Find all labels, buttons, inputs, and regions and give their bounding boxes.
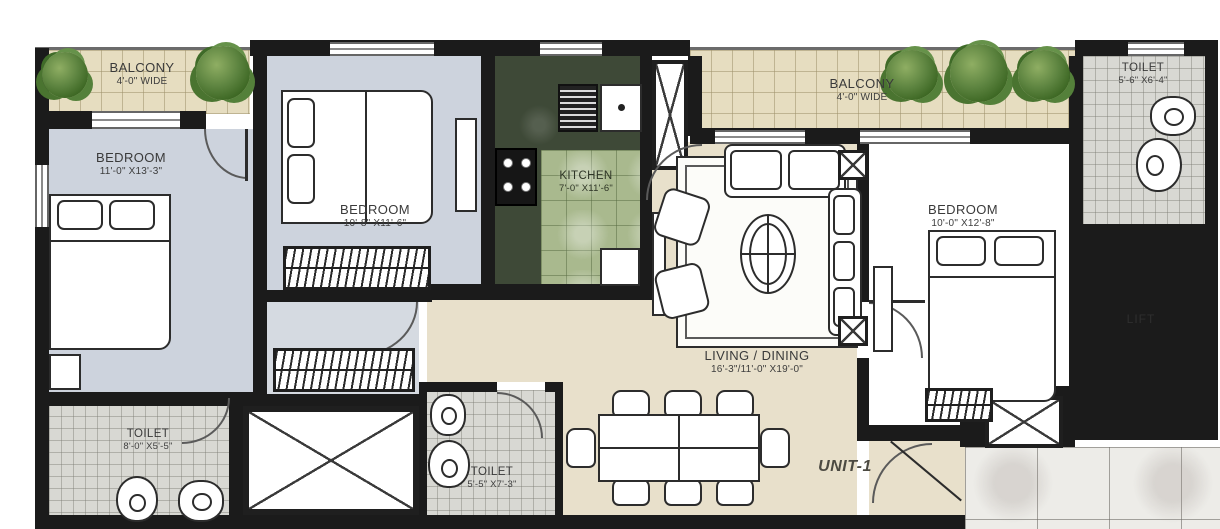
sink-icon [600, 84, 642, 132]
wardrobe-icon [273, 348, 415, 392]
wall [1205, 40, 1218, 230]
refrigerator-icon [558, 84, 598, 132]
unit-label: UNIT-1 [818, 458, 872, 476]
wardrobe-icon [925, 388, 993, 422]
room-name: TOILET [1118, 62, 1167, 74]
bedroom-left-label: BEDROOM 11'-0" X13'-3" [96, 150, 166, 177]
chair-icon [566, 428, 596, 468]
wall [430, 284, 652, 300]
wall [229, 406, 243, 515]
pillow-icon [57, 200, 103, 230]
bedroom-right-label: BEDROOM 10'-0" X12'-8" [928, 202, 998, 229]
end-table-icon [838, 150, 868, 180]
toilet-bottom-left-label: TOILET 8'-0" X5'-5" [123, 428, 172, 452]
wall [857, 358, 869, 441]
chair-icon [664, 478, 702, 506]
room-dim: 10'-0" X12'-8" [928, 218, 998, 229]
kitchen-counter-icon [600, 248, 640, 286]
wall [419, 382, 497, 392]
plant-icon [196, 46, 250, 100]
chair-icon [612, 478, 650, 506]
balcony-right-label: BALCONY 4'-0" WIDE [830, 76, 895, 103]
room-dim: 4'-0" WIDE [830, 92, 895, 103]
room-name: BEDROOM [340, 202, 410, 217]
sink-drain-icon [618, 104, 625, 111]
sofa-cushion [833, 195, 855, 235]
balcony-left-label: BALCONY 4'-0" WIDE [110, 60, 175, 87]
washbasin-icon [1150, 96, 1196, 136]
room-name: KITCHEN [559, 170, 613, 182]
window [715, 130, 805, 144]
corridor-floor [427, 298, 652, 382]
door-leaf [245, 129, 248, 181]
window [860, 130, 970, 144]
wall [35, 515, 965, 529]
living-dining-label: LIVING / DINING 16'-3"/11'-0" X19'-0" [705, 348, 810, 375]
window [1128, 42, 1184, 56]
sofa-icon [828, 188, 862, 336]
stove-icon [495, 148, 537, 206]
pillow-icon [994, 236, 1044, 266]
room-name: BALCONY [830, 76, 895, 91]
room-dim: 16'-3"/11'-0" X19'-0" [705, 364, 810, 375]
window [330, 42, 434, 56]
burner-icon [503, 182, 513, 192]
toilet-middle-label: TOILET 5'-5" X7'-3" [467, 466, 516, 490]
room-dim: 5'-5" X7'-3" [467, 479, 516, 490]
room-dim: 5'-6" X6'-4" [1118, 75, 1167, 86]
room-name: BALCONY [110, 60, 175, 75]
plant-icon [950, 44, 1008, 102]
wc-icon [1136, 138, 1182, 192]
wardrobe-icon [283, 246, 431, 290]
window [540, 42, 602, 56]
plant-icon [1018, 50, 1070, 100]
bedroom-middle-label: BEDROOM 10'-8" X11'-6" [340, 202, 410, 229]
lift-label: LIFT [1127, 312, 1156, 326]
pillow-icon [109, 200, 155, 230]
room-dim: 8'-0" X5'-5" [123, 441, 172, 452]
room-dim: 7'-0" X11'-6" [559, 183, 613, 194]
wall [555, 390, 563, 515]
dresser-icon [455, 118, 477, 212]
wall [419, 390, 427, 515]
wall [35, 111, 92, 129]
room-dim: 10'-8" X11'-6" [340, 218, 410, 229]
wall [481, 56, 495, 298]
plant-icon [42, 52, 88, 98]
burner-icon [521, 182, 531, 192]
washbasin-icon [430, 394, 466, 436]
floor-plan: BALCONY 4'-0" WIDE BEDROOM 11'-0" X13'-3… [0, 0, 1220, 529]
blanket-line [928, 276, 1056, 278]
side-table-icon [49, 354, 81, 390]
wall [180, 111, 206, 129]
wall [688, 56, 702, 136]
sofa-cushion [788, 150, 840, 190]
window [92, 111, 180, 129]
shaft-x-icon [243, 406, 419, 515]
burner-icon [503, 158, 513, 168]
chair-icon [760, 428, 790, 468]
room-dim: 11'-0" X13'-3" [96, 166, 166, 177]
kitchen-label: KITCHEN 7'-0" X11'-6" [559, 170, 613, 194]
wc-icon [428, 440, 470, 488]
pillow-icon [287, 98, 315, 148]
coffee-table-icon [740, 214, 796, 294]
wall [267, 290, 432, 302]
chair-icon [716, 478, 754, 506]
pillow-icon [936, 236, 986, 266]
room-name: BEDROOM [928, 202, 998, 217]
wall [250, 40, 690, 56]
pillow-icon [287, 154, 315, 204]
blanket-line [49, 240, 171, 242]
dining-table-icon [598, 414, 760, 482]
shaft-x-icon [985, 396, 1063, 448]
toilet-top-right-label: TOILET 5'-6" X6'-4" [1118, 62, 1167, 86]
wall [253, 56, 267, 396]
window [35, 165, 49, 227]
room-name: LIFT [1127, 312, 1156, 326]
room-name: TOILET [123, 428, 172, 440]
room-name: BEDROOM [96, 150, 166, 165]
room-dim: 4'-0" WIDE [110, 76, 175, 87]
washbasin-icon [178, 480, 224, 522]
sofa-cushion [833, 241, 855, 281]
sofa-icon [724, 144, 846, 198]
wc-icon [116, 476, 158, 522]
dresser-icon [873, 266, 893, 352]
lobby-floor [965, 447, 1220, 529]
burner-icon [521, 158, 531, 168]
balcony-right-railing [690, 47, 1075, 50]
lift-shaft-wall [1069, 228, 1218, 440]
sofa-cushion [730, 150, 782, 190]
end-table-icon [838, 316, 868, 346]
room-name: TOILET [467, 466, 516, 478]
room-name: LIVING / DINING [705, 348, 810, 363]
